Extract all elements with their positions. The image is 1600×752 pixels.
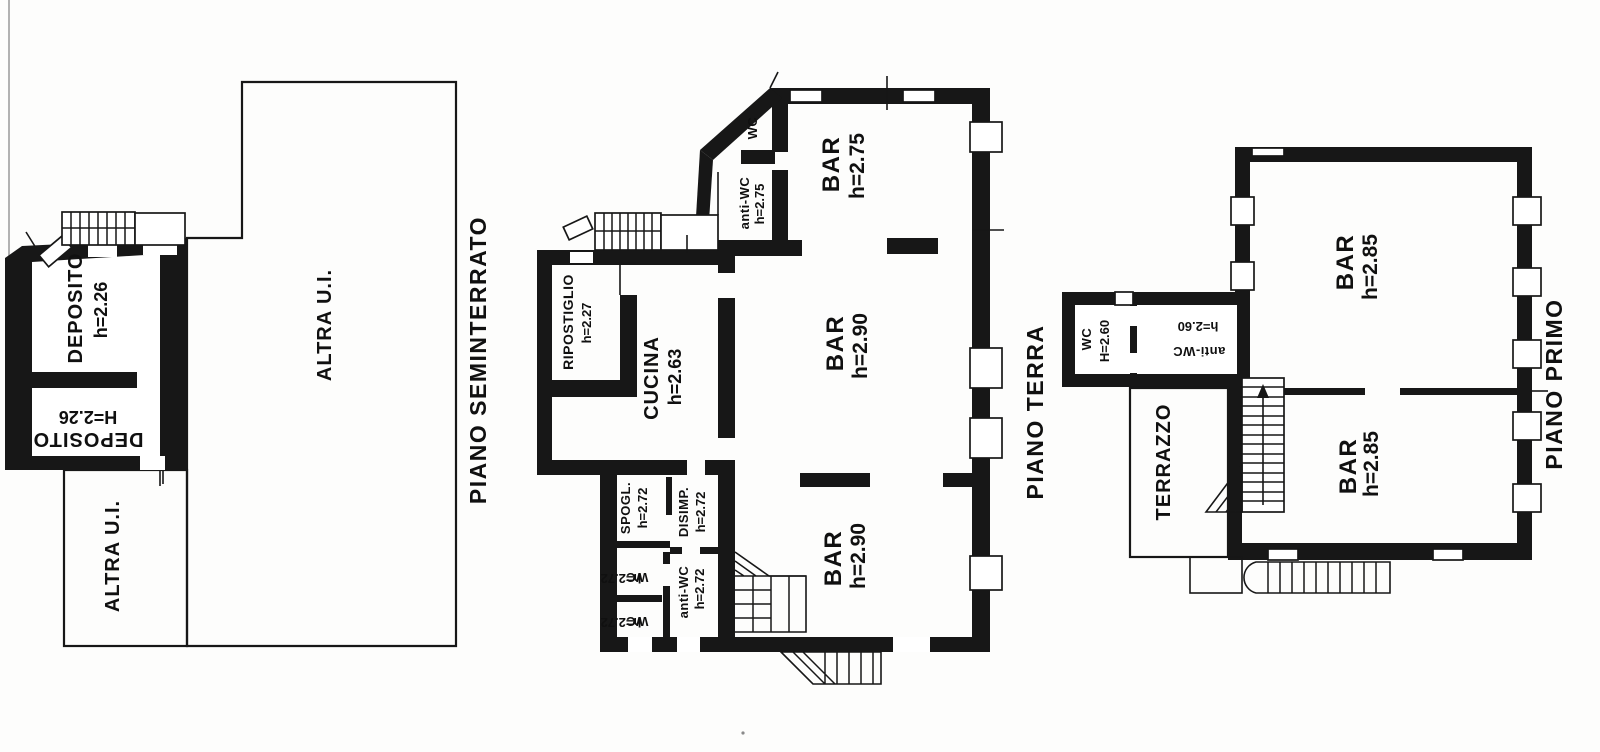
window — [970, 122, 1002, 152]
room-label-bar-290-upper: BAR — [822, 315, 849, 372]
chamfer-wall — [700, 88, 782, 160]
spogl-south-partition — [617, 541, 670, 548]
room-height-bar-lower: h=2.85 — [1360, 431, 1383, 497]
bottom-wall-door-gap — [140, 456, 165, 470]
window — [1231, 197, 1254, 225]
window — [970, 418, 1002, 458]
room-height-bar-275: h=2.75 — [846, 133, 869, 199]
wc-strip-east-wall-b — [772, 170, 788, 242]
window — [1513, 197, 1541, 225]
terrazzo-landing — [1190, 557, 1242, 593]
room-label-bar-lower: BAR — [1335, 438, 1362, 495]
bottom-door-slot — [1268, 549, 1298, 560]
ext-stair-steps — [793, 652, 873, 684]
bottom-door-gap-1 — [628, 637, 652, 652]
wc-partition-gap — [1128, 306, 1139, 326]
bar-divider-stub-upper — [887, 238, 938, 254]
central-wall-foot — [705, 460, 735, 475]
interior-door-gap — [137, 372, 160, 388]
room-label-deposito: DEPOSITO — [65, 253, 87, 364]
room-height-antiwc: h=2.60 — [1178, 319, 1219, 334]
window — [970, 348, 1002, 388]
spogl-east-partition — [666, 477, 672, 515]
ripostiglio-south-wall — [537, 380, 637, 397]
top-wall-slot — [903, 90, 935, 102]
room-height-disimp: h=2.72 — [693, 492, 708, 533]
wall-tick — [770, 72, 778, 88]
window — [1231, 262, 1254, 290]
block-east-wall — [718, 475, 735, 637]
room-label-wc: WC — [1079, 328, 1094, 351]
room-label-altra-ui-small: ALTRA U.I. — [102, 500, 124, 612]
room-label-cucina: CUCINA — [641, 336, 663, 420]
room-height-bar-290-upper: h=2.90 — [849, 313, 872, 379]
bottom-wall — [600, 637, 990, 652]
bottom-door-gap-2 — [677, 637, 700, 652]
floor-title-terra: PIANO TERRA — [1022, 325, 1048, 500]
floor-terra: WC anti-WC h=2.75 BAR h=2.75 RIPOSTIGLIO… — [537, 72, 1048, 684]
room-height-deposito: h=2.26 — [91, 282, 111, 339]
room-height-bar-upper: h=2.85 — [1359, 234, 1382, 300]
room-label-altra-ui-large: ALTRA U.I. — [314, 269, 336, 381]
room-height-cucina: h=2.63 — [665, 349, 685, 406]
room-height-wc: H=2.60 — [1097, 320, 1112, 362]
antiwc-north-partition-a — [670, 547, 682, 554]
room-label-deposito-2: DEPOSITO — [33, 428, 144, 450]
floor-title-seminterrato: PIANO SEMINTERRATO — [465, 216, 491, 504]
room-height-spogl: h=2.72 — [635, 488, 650, 529]
altra-ui-small-outline — [64, 470, 187, 646]
antiwc-west-partition-a — [663, 552, 670, 564]
ext-stair-outline — [1244, 562, 1390, 593]
stairs-landing — [135, 213, 185, 245]
window — [1513, 484, 1541, 512]
window — [970, 556, 1002, 590]
floor-primo: WC H=2.60 h=2.60 anti-WC BAR h=2.85 TERR… — [1062, 147, 1567, 593]
top-wall-slot — [790, 90, 822, 102]
stairs-landing — [661, 215, 718, 250]
bar-divider-stub-lower-b — [943, 473, 972, 487]
window — [1513, 268, 1541, 296]
room-label-disimp: DISIMP. — [676, 487, 691, 537]
door-leaf — [563, 216, 592, 240]
floor-seminterrato: DEPOSITO h=2.26 H=2.26 DEPOSITO ALTRA U.… — [5, 82, 491, 646]
room-height-bar-290-lower: h=2.90 — [847, 523, 870, 589]
winder-stair-steps — [735, 561, 806, 632]
bottom-door-slot — [1433, 549, 1463, 560]
left-wall-lower — [1228, 387, 1242, 543]
ripostiglio-inner-lines — [620, 263, 636, 295]
wc-divider-partition — [617, 595, 662, 602]
window — [1513, 412, 1541, 440]
room-label-antiwc: anti-WC — [737, 177, 752, 230]
terrazzo-outline — [1130, 388, 1228, 557]
room-label-ripostiglio: RIPOSTIGLIO — [560, 274, 576, 370]
antiwc-north-partition-b — [700, 547, 718, 554]
bar-divider-a — [1284, 388, 1365, 395]
floorplan-canvas: DEPOSITO h=2.26 H=2.26 DEPOSITO ALTRA U.… — [0, 0, 1600, 752]
room-height-wc2: h=2.72 — [601, 615, 642, 630]
room-label-antiwc: anti-WC — [1173, 344, 1226, 359]
room-height-antiwc: h=2.75 — [752, 184, 767, 225]
wc-block-door-slot — [1115, 292, 1133, 305]
room-label-wc: WC — [745, 117, 760, 140]
room-label-bar-290-lower: BAR — [820, 530, 847, 587]
room-label-terrazzo: TERRAZZO — [1153, 404, 1175, 521]
antiwc-west-partition-b — [663, 586, 670, 637]
bar-divider-b — [1400, 388, 1517, 395]
central-wall — [718, 298, 735, 438]
room-label-bar-upper: BAR — [1332, 234, 1359, 291]
room-height-deposito-2: H=2.26 — [59, 407, 118, 427]
wc-strip-east-wall-a — [772, 102, 788, 152]
wc-partition-gap — [1128, 353, 1139, 373]
bottom-door-gap-3 — [893, 637, 930, 652]
window — [1513, 340, 1541, 368]
room-height-ripostiglio: h=2.27 — [579, 303, 594, 344]
floorplan-sheet: DEPOSITO h=2.26 H=2.26 DEPOSITO ALTRA U.… — [0, 0, 1600, 752]
floor-title-primo: PIANO PRIMO — [1541, 298, 1567, 469]
central-wall-junction — [718, 240, 735, 273]
west-wall — [537, 252, 552, 460]
ripostiglio-door-gap — [570, 252, 593, 263]
room-label-antiwc-272: anti-WC — [676, 566, 691, 619]
wc-partition — [741, 150, 775, 164]
room-height-wc1: h=2.72 — [601, 571, 642, 586]
room-height-antiwc-272: h=2.72 — [692, 569, 707, 610]
ext-stair-steps — [1268, 562, 1376, 593]
bar-divider-stub-lower-a — [800, 473, 870, 487]
top-wall-slot — [1252, 148, 1284, 156]
room-label-spogl: SPOGL. — [618, 482, 633, 534]
room-label-bar-275: BAR — [818, 136, 845, 193]
scan-speck — [741, 731, 744, 734]
